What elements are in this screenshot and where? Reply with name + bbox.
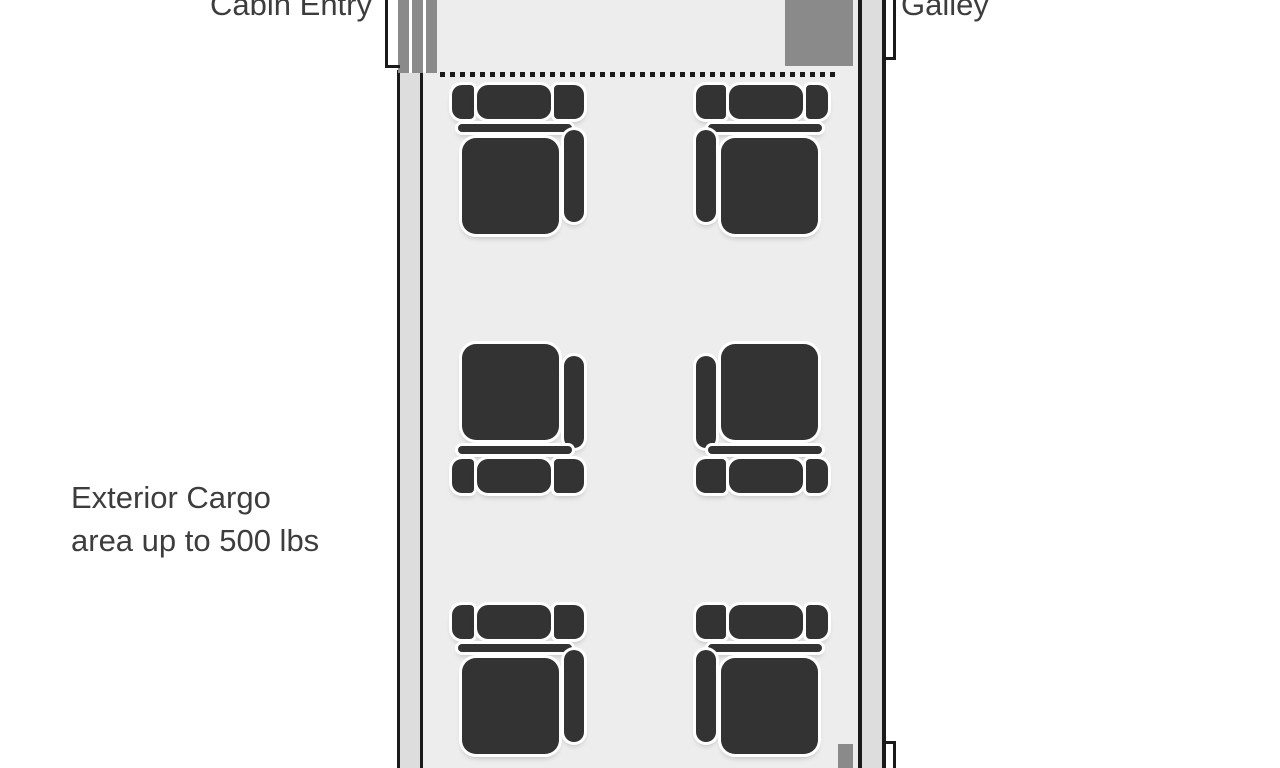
- seat-row2-left: [452, 344, 584, 493]
- seat-headrest-wing-outer: [452, 605, 474, 639]
- seat-back-edge: [458, 124, 572, 132]
- seat-headrest-wing-outer: [452, 85, 474, 119]
- seat-backrest: [696, 459, 828, 493]
- exterior-cargo-line1: Exterior Cargo: [71, 476, 401, 519]
- seat-row1-left: [452, 85, 584, 234]
- seat-backrest: [452, 459, 584, 493]
- seat-row2-right: [696, 344, 828, 493]
- seat-backrest-center: [477, 605, 551, 639]
- seat-backrest: [696, 85, 828, 119]
- aft-door-panel: [838, 744, 853, 768]
- seat-headrest-wing-aisle: [696, 459, 726, 493]
- seat-backrest-center: [729, 85, 803, 119]
- aft-door-open-outline: [886, 741, 896, 768]
- fuselage-right-wall: [858, 0, 886, 768]
- seat-armrest: [696, 130, 716, 222]
- seat-body: [452, 344, 584, 440]
- seat-cushion: [721, 344, 818, 440]
- seat-backrest-center: [729, 459, 803, 493]
- seat-cushion: [462, 344, 559, 440]
- seat-armrest: [564, 130, 584, 222]
- seat-headrest-wing-aisle: [554, 459, 584, 493]
- seat-cushion: [721, 658, 818, 754]
- seat-row1-right: [696, 85, 828, 234]
- seat-row3-right: [696, 605, 828, 754]
- cabin-entry-door: [398, 0, 437, 73]
- seat-headrest-wing-aisle: [554, 85, 584, 119]
- cabin-entry-label: Cabin Entry: [150, 0, 372, 23]
- seat-back-edge: [708, 644, 822, 652]
- seat-backrest-center: [477, 85, 551, 119]
- seat-headrest-wing-aisle: [696, 85, 726, 119]
- seat-row3-left: [452, 605, 584, 754]
- seat-body: [696, 344, 828, 440]
- vestibule-divider-dotted-line: [440, 72, 840, 77]
- seat-headrest-wing-aisle: [554, 605, 584, 639]
- seat-body: [452, 138, 584, 234]
- seat-backrest: [696, 605, 828, 639]
- seat-back-edge: [458, 644, 572, 652]
- cabin-floor-plan: Cabin Entry Galley Exterior Cargo area u…: [0, 0, 1280, 768]
- seat-armrest: [696, 650, 716, 742]
- cabin-entry-open-door-outline: [385, 0, 400, 68]
- seat-armrest: [696, 356, 716, 448]
- exterior-cargo-label: Exterior Cargo area up to 500 lbs: [71, 476, 401, 562]
- seat-back-edge: [458, 446, 572, 454]
- seat-cushion: [462, 138, 559, 234]
- seat-body: [452, 658, 584, 754]
- seat-backrest-center: [729, 605, 803, 639]
- seat-back-edge: [708, 446, 822, 454]
- seat-backrest: [452, 605, 584, 639]
- seat-back-edge: [708, 124, 822, 132]
- seat-body: [696, 138, 828, 234]
- fuselage-left-wall: [397, 70, 423, 768]
- seat-headrest-wing-outer: [806, 459, 828, 493]
- seat-headrest-wing-outer: [806, 85, 828, 119]
- seat-cushion: [721, 138, 818, 234]
- seat-headrest-wing-aisle: [696, 605, 726, 639]
- seat-body: [696, 658, 828, 754]
- exterior-cargo-line2: area up to 500 lbs: [71, 519, 401, 562]
- seat-cushion: [462, 658, 559, 754]
- galley-label: Galley: [901, 0, 989, 23]
- galley-door-open-outline: [886, 0, 896, 60]
- seat-headrest-wing-outer: [452, 459, 474, 493]
- seat-armrest: [564, 356, 584, 448]
- seat-backrest-center: [477, 459, 551, 493]
- seat-headrest-wing-outer: [806, 605, 828, 639]
- galley-unit: [785, 0, 853, 66]
- seat-armrest: [564, 650, 584, 742]
- seat-backrest: [452, 85, 584, 119]
